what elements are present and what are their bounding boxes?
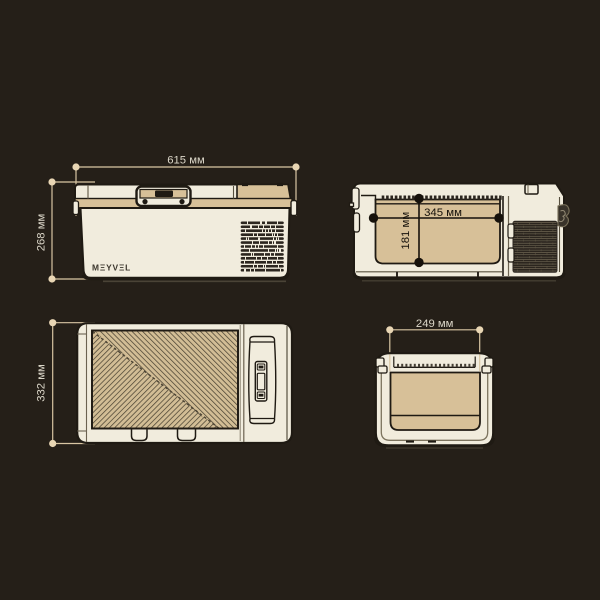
svg-text:345 мм: 345 мм: [424, 207, 462, 219]
svg-text:268 мм: 268 мм: [36, 214, 48, 252]
svg-text:181 мм: 181 мм: [400, 212, 412, 250]
svg-text:615 мм: 615 мм: [167, 155, 205, 167]
svg-text:MΞYVΞL: MΞYVΞL: [92, 263, 131, 273]
svg-text:249 мм: 249 мм: [416, 318, 454, 330]
svg-text:332 мм: 332 мм: [36, 364, 48, 402]
